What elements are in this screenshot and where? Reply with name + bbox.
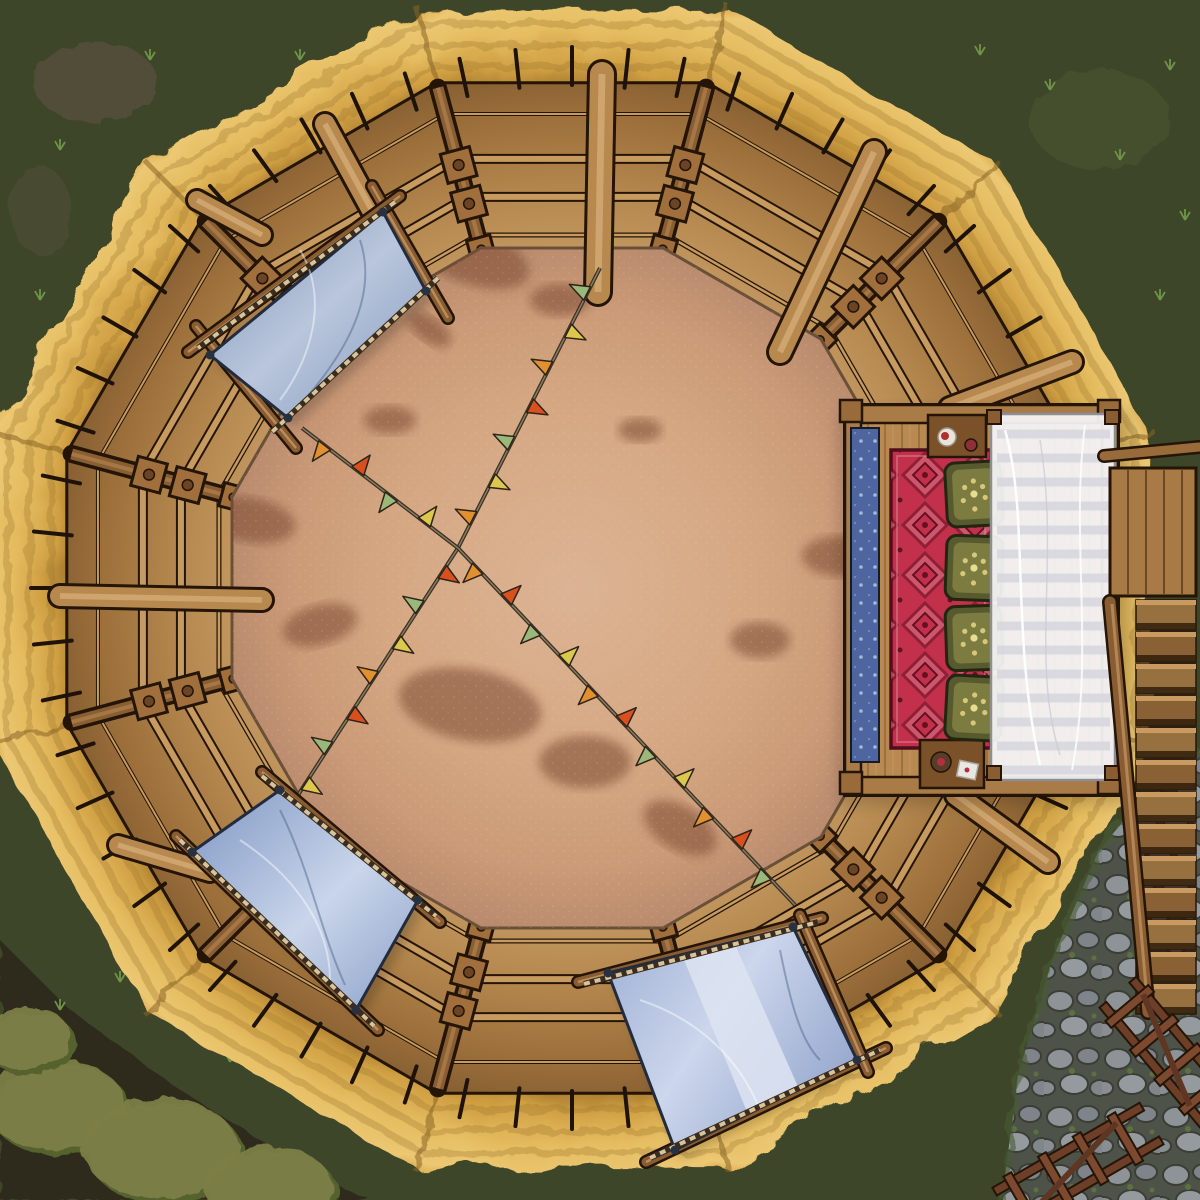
corner-tie	[206, 351, 215, 360]
tread-edge	[1136, 792, 1196, 797]
post-rosette	[182, 686, 193, 697]
tread-shadow	[1136, 719, 1196, 726]
side-table-top	[928, 415, 986, 457]
tread-shadow	[1136, 847, 1196, 854]
food	[941, 432, 949, 440]
tread-edge	[1136, 824, 1196, 829]
tread-shadow	[1136, 815, 1196, 822]
food	[937, 758, 945, 766]
tread-edge	[1136, 696, 1196, 701]
dirt-patch	[33, 42, 157, 122]
post-rosette	[453, 160, 464, 171]
food	[965, 768, 970, 773]
grass-patch	[1030, 70, 1170, 170]
corner-block	[840, 400, 862, 422]
tread-shadow	[1136, 751, 1196, 758]
post-rosette	[464, 967, 475, 978]
corner-tie	[284, 414, 293, 423]
dirt-patch	[10, 166, 70, 254]
tread-edge	[1136, 728, 1196, 733]
post-rosette	[144, 696, 155, 707]
canopy-post	[1105, 766, 1119, 780]
corner-tie	[422, 287, 431, 296]
tread-shadow	[1136, 879, 1196, 886]
post-rosette	[680, 160, 691, 171]
corner-tie	[276, 786, 285, 795]
beam-highlight	[598, 74, 602, 292]
tread-edge	[1136, 632, 1196, 637]
white-canopy	[987, 410, 1119, 780]
corner-tie	[789, 923, 798, 932]
corner-tie	[853, 1056, 862, 1065]
corner-tie	[671, 1146, 680, 1155]
post-rosette	[453, 1006, 464, 1017]
post-rosette	[876, 892, 887, 903]
beam-highlight	[60, 596, 262, 600]
battle-map	[0, 0, 1200, 1200]
map-canvas	[0, 0, 1200, 1200]
corner-tie	[352, 1006, 361, 1015]
post-rosette	[464, 198, 475, 209]
post-rosette	[848, 864, 859, 875]
tread-edge	[1136, 600, 1196, 605]
stair-landing	[1110, 468, 1196, 596]
corner-tie	[379, 208, 388, 217]
post-rosette	[848, 301, 859, 312]
tread-edge	[1136, 664, 1196, 669]
tread-edge	[1136, 856, 1196, 861]
post-rosette	[144, 469, 155, 480]
tread-shadow	[1136, 687, 1196, 694]
runner-pattern	[851, 428, 879, 762]
tread-edge	[1136, 888, 1196, 893]
post-rosette	[876, 273, 887, 284]
vip-platform	[840, 400, 1130, 804]
side-table-bottom	[920, 740, 984, 788]
post-rosette	[670, 198, 681, 209]
corner-tie	[188, 848, 197, 857]
corner-tie	[604, 969, 613, 978]
canopy-post	[987, 410, 1001, 424]
canopy-post	[1105, 410, 1119, 424]
canopy-post	[987, 766, 1001, 780]
cup	[965, 439, 977, 451]
tread-shadow	[1136, 623, 1196, 630]
tread-shadow	[1136, 783, 1196, 790]
tread-edge	[1136, 760, 1196, 765]
corner-tie	[414, 896, 423, 905]
tread-shadow	[1136, 655, 1196, 662]
corner-block	[840, 772, 862, 794]
post-rosette	[257, 273, 268, 284]
post-rosette	[182, 480, 193, 491]
